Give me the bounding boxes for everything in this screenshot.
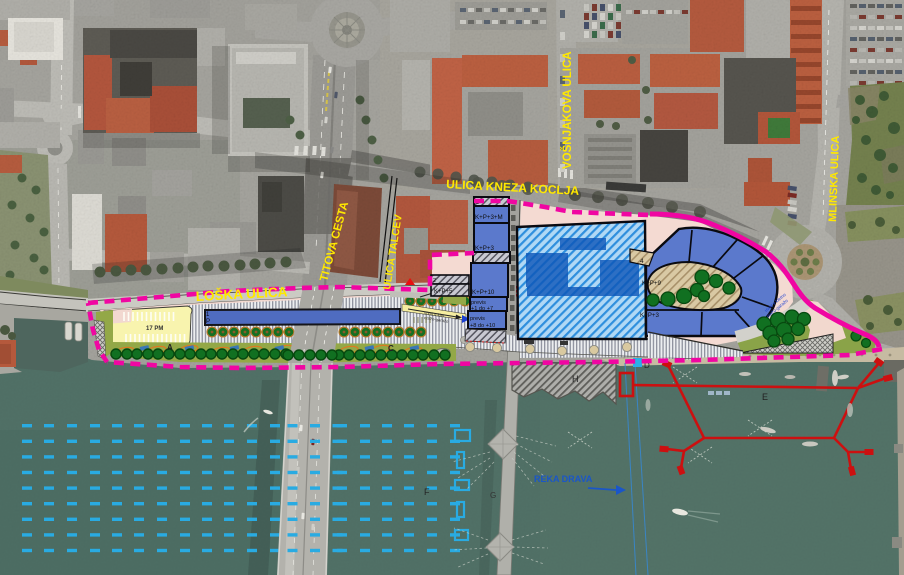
- svg-text:+1 do +7: +1 do +7: [471, 306, 493, 312]
- svg-text:2: 2: [433, 278, 436, 284]
- svg-text:K+P+10: K+P+10: [472, 289, 495, 296]
- svg-text:H: H: [572, 374, 579, 384]
- svg-text:+8 do +10: +8 do +10: [470, 323, 495, 329]
- svg-text:E: E: [762, 392, 768, 402]
- svg-text:F: F: [424, 487, 430, 497]
- svg-text:C: C: [388, 344, 394, 353]
- svg-text:A: A: [167, 343, 173, 352]
- svg-text:VOŠNJAKOVA ULICA: VOŠNJAKOVA ULICA: [561, 51, 574, 169]
- svg-text:previs: previs: [470, 316, 485, 322]
- svg-text:G: G: [490, 491, 496, 500]
- svg-text:K+P+9: K+P+9: [642, 280, 661, 287]
- svg-text:K+P+3+M: K+P+3+M: [475, 214, 503, 221]
- svg-text:K+P+5: K+P+5: [434, 289, 453, 295]
- svg-text:K+P+3: K+P+3: [475, 245, 494, 252]
- svg-text:K+P+3: K+P+3: [640, 312, 659, 319]
- svg-text:17 PM: 17 PM: [146, 326, 163, 332]
- svg-text:4: 4: [640, 258, 644, 265]
- svg-text:P: P: [206, 319, 210, 325]
